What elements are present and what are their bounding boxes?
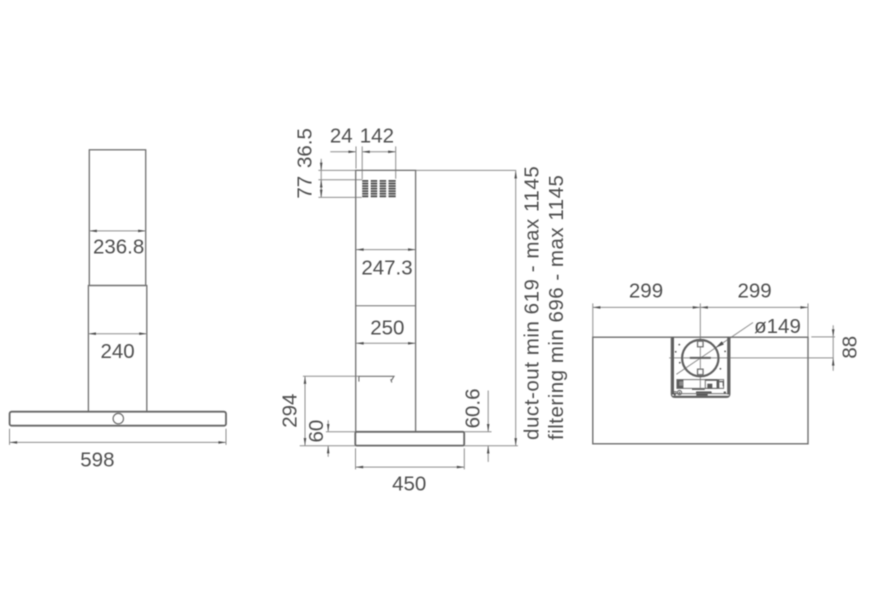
svg-text:450: 450 bbox=[392, 472, 426, 495]
svg-text:60: 60 bbox=[305, 420, 328, 443]
svg-text:299: 299 bbox=[737, 280, 771, 303]
svg-text:598: 598 bbox=[80, 449, 114, 472]
svg-text:duct-out min 619 - max 1145: duct-out min 619 - max 1145 bbox=[521, 166, 544, 440]
svg-text:299: 299 bbox=[629, 280, 663, 303]
svg-text:142: 142 bbox=[360, 125, 394, 148]
svg-text:240: 240 bbox=[100, 340, 134, 363]
svg-text:294: 294 bbox=[278, 394, 301, 428]
svg-text:24: 24 bbox=[330, 125, 353, 148]
svg-text:ø149: ø149 bbox=[754, 315, 801, 338]
svg-text:236.8: 236.8 bbox=[93, 235, 144, 258]
svg-text:247.3: 247.3 bbox=[361, 257, 412, 280]
svg-text:60.6: 60.6 bbox=[461, 388, 484, 428]
svg-text:88: 88 bbox=[838, 336, 861, 359]
svg-text:36.5: 36.5 bbox=[293, 128, 316, 168]
svg-text:250: 250 bbox=[370, 316, 404, 339]
svg-text:77: 77 bbox=[293, 176, 316, 199]
svg-text:filtering min 696 - max 1145: filtering min 696 - max 1145 bbox=[545, 175, 568, 440]
